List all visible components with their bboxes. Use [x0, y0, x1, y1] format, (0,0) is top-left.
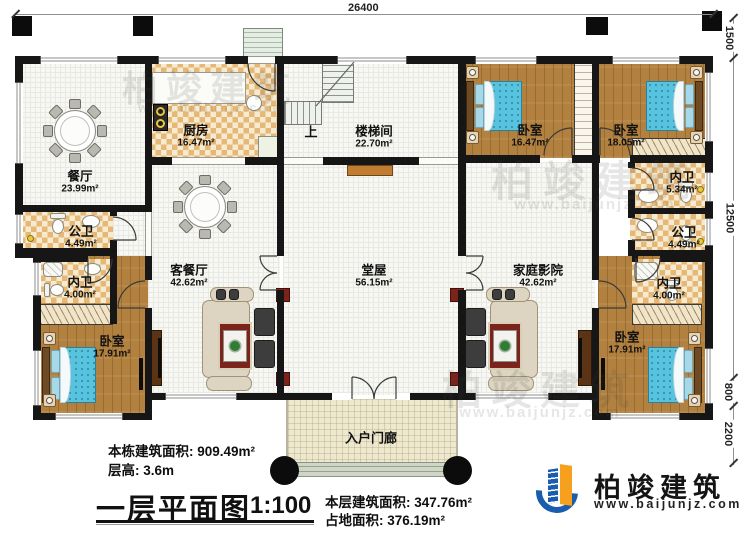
wall-kitchen-stair — [277, 56, 284, 162]
wall-theater-bedright-a — [592, 162, 599, 280]
title-underline — [96, 520, 314, 523]
living-tv — [158, 338, 161, 378]
label-porch: 入户门廊 — [345, 428, 397, 447]
logo-mark — [534, 463, 588, 521]
bed-pillow — [685, 84, 694, 105]
kitchen-counter — [152, 72, 246, 104]
logo-building-orange-icon — [560, 464, 572, 506]
bed-blanket-fold — [673, 81, 684, 131]
window-bathpl-left — [15, 214, 23, 244]
porch-steps — [288, 462, 456, 477]
window-bedB-top — [612, 56, 680, 64]
nightstand — [690, 66, 703, 79]
wall-stair-hall — [323, 157, 419, 165]
wall-living-hall-b — [277, 290, 284, 395]
plan-scale: 1:100 — [250, 492, 311, 520]
window-bedA-top — [475, 56, 537, 64]
bedroom-tv — [139, 358, 143, 390]
window-living-bottom — [165, 393, 237, 400]
wall-bathnl-north — [41, 256, 88, 262]
wall-bathnl-side — [110, 256, 117, 324]
floor-drain — [27, 235, 34, 242]
wall-bathNR-north — [660, 256, 706, 262]
sofa-cushion — [492, 289, 502, 300]
toilet-bowl — [52, 219, 64, 234]
wall-bottom-hall-left — [283, 393, 332, 400]
window-bedright-right — [705, 348, 713, 404]
wall-bathNR-jamb — [632, 256, 638, 262]
theater-plant — [500, 341, 510, 351]
toilet-bowl — [50, 284, 64, 296]
label-theater: 家庭影院42.62m² — [513, 263, 563, 288]
bed-headboard — [695, 81, 703, 131]
nightstand — [43, 332, 56, 345]
opening-stair-left — [284, 157, 323, 165]
window-bedleft-bottom — [55, 413, 123, 420]
title-underline-2 — [96, 524, 314, 525]
entrance-sill-left — [332, 393, 352, 400]
kitchen-basin — [246, 95, 262, 111]
wall-living-hall-a — [277, 162, 284, 256]
label-bath-ensuite-top-right: 内卫5.34m² — [666, 170, 698, 195]
nightstand — [43, 394, 56, 407]
nightstand — [688, 332, 701, 345]
label-bedroom-bottom-right: 卧室17.91m² — [608, 330, 645, 355]
label-living: 客餐厅42.62m² — [170, 263, 208, 288]
dim-tick — [729, 458, 738, 467]
bed-pillow — [684, 350, 693, 373]
theater-armchair-2 — [465, 340, 486, 368]
bath-sink — [638, 188, 659, 203]
bed-pillow — [475, 107, 484, 128]
wall-bedleft-living-a — [145, 256, 152, 280]
wall-bedA-bedB — [592, 56, 599, 156]
dim-right-12500: 12500 — [723, 201, 735, 236]
label-kitchen: 厨房16.47m² — [177, 123, 214, 148]
bed-pillow — [51, 350, 60, 373]
label-bath-public-left: 公卫4.49m² — [65, 224, 97, 249]
opening-stair-right — [419, 157, 458, 165]
window-bedB-right — [705, 72, 713, 142]
living-armchair-1 — [254, 308, 275, 336]
theater-sofa-bottom — [488, 376, 534, 391]
pier-top-1 — [12, 16, 32, 36]
pier-top-2 — [133, 16, 153, 36]
wall-dining-south — [15, 205, 152, 212]
stair-flight-upper — [322, 63, 354, 103]
bath-sink — [637, 218, 658, 233]
wall-bathpl-jamb — [110, 210, 117, 216]
dim-right-800: 800 — [722, 381, 734, 403]
shower-tray — [43, 262, 63, 277]
wall-hall-theater-a — [458, 162, 466, 256]
label-bedroom-top-right: 卧室18.05m² — [607, 123, 644, 148]
living-sofa-bottom — [206, 376, 252, 391]
wall-bathblock-a — [628, 162, 635, 168]
porch-column-right — [443, 456, 472, 485]
window-theater-bottom — [475, 393, 549, 400]
exterior-back-steps — [243, 28, 283, 59]
floor-plan-canvas: 柏竣建筑 www.baijunjz.com 柏竣建筑 www.baijunjz.… — [0, 0, 750, 533]
window-bathPR-right — [705, 218, 713, 246]
logo-website: www.baijunjz.com — [594, 497, 742, 511]
nightstand — [466, 66, 479, 79]
porch-column-left — [270, 456, 299, 485]
theater-tv — [579, 338, 582, 378]
wall-bottom-hall-right — [410, 393, 461, 400]
window-dining-left — [15, 82, 23, 164]
label-stairs-up: 上 — [304, 122, 317, 141]
kitchen-back-door-gap — [248, 56, 275, 64]
wall-kitchen-south-a — [145, 157, 172, 165]
label-bath-ensuite-left: 内卫4.00m² — [64, 275, 96, 300]
window-bathT-right — [705, 172, 713, 202]
window-bedleft-left — [33, 350, 41, 406]
stove-burner-2 — [156, 119, 165, 128]
nightstand — [690, 131, 703, 144]
pier-top-3 — [586, 17, 608, 35]
bed-headboard — [466, 81, 474, 131]
dim-line-top — [15, 14, 714, 15]
label-stairwell: 楼梯间22.70m² — [355, 124, 393, 149]
dim-right-1500: 1500 — [723, 24, 735, 52]
hall-cabinet — [347, 165, 393, 176]
window-bathnl-left — [33, 262, 41, 296]
nightstand — [688, 394, 701, 407]
sofa-cushion — [229, 289, 239, 300]
opening-corridor — [145, 212, 152, 256]
living-armchair-2 — [254, 340, 275, 368]
wall-bedA-south-a — [458, 155, 540, 163]
logo-building-blue-icon — [548, 468, 558, 503]
wall-dining-kitchen — [145, 56, 152, 212]
window-kitchen-top — [158, 56, 226, 64]
theater-armchair-1 — [465, 308, 486, 336]
bed-pillow — [685, 107, 694, 128]
label-bath-ensuite-bottom-right: 内卫4.00m² — [653, 276, 685, 301]
sofa-cushion — [216, 289, 226, 300]
label-hall: 堂屋56.15m² — [355, 263, 392, 288]
window-dining-top — [40, 56, 118, 64]
label-bedroom-top-left: 卧室16.47m² — [511, 123, 548, 148]
label-bedroom-bottom-left: 卧室17.91m² — [93, 334, 130, 359]
wall-bathT-bathPR — [628, 208, 708, 214]
bed-blanket-fold — [673, 347, 684, 403]
bedroom-tv — [601, 358, 605, 390]
bed-pillow — [475, 84, 484, 105]
dim-right-2200: 2200 — [722, 420, 734, 448]
window-bedright-bottom — [610, 413, 680, 420]
dim-top-label: 26400 — [346, 2, 381, 14]
living-plant — [230, 341, 240, 351]
sofa-cushion — [505, 289, 515, 300]
wall-theater-bedright-b — [592, 308, 599, 420]
label-dining: 餐厅23.99m² — [61, 169, 98, 194]
wall-bedleft-living-b — [145, 308, 152, 420]
opening-kitchen-living — [172, 157, 245, 165]
stat-building-total: 本栋建筑面积: 909.49m² — [108, 440, 255, 460]
wall-bedB-south — [630, 155, 713, 163]
entrance-sill-right — [396, 393, 410, 400]
wardrobe-bottom-left — [40, 304, 113, 325]
wall-kitchen-south-b — [245, 157, 284, 165]
stat-floor-height: 层高: 3.6m — [108, 459, 174, 479]
nightstand — [466, 131, 479, 144]
label-bath-public-right: 公卫4.49m² — [668, 225, 700, 250]
wardrobe-bottom-right — [632, 304, 702, 325]
bath-sink — [84, 263, 101, 275]
wall-stair-bedA — [458, 56, 466, 157]
stat-footprint: 占地面积: 376.19m² — [325, 509, 445, 529]
stove-burner-1 — [156, 107, 165, 116]
window-stairwell-top — [337, 56, 407, 64]
stat-floor-area: 本层建筑面积: 347.76m² — [325, 491, 472, 511]
wall-hall-theater-b — [458, 290, 466, 395]
